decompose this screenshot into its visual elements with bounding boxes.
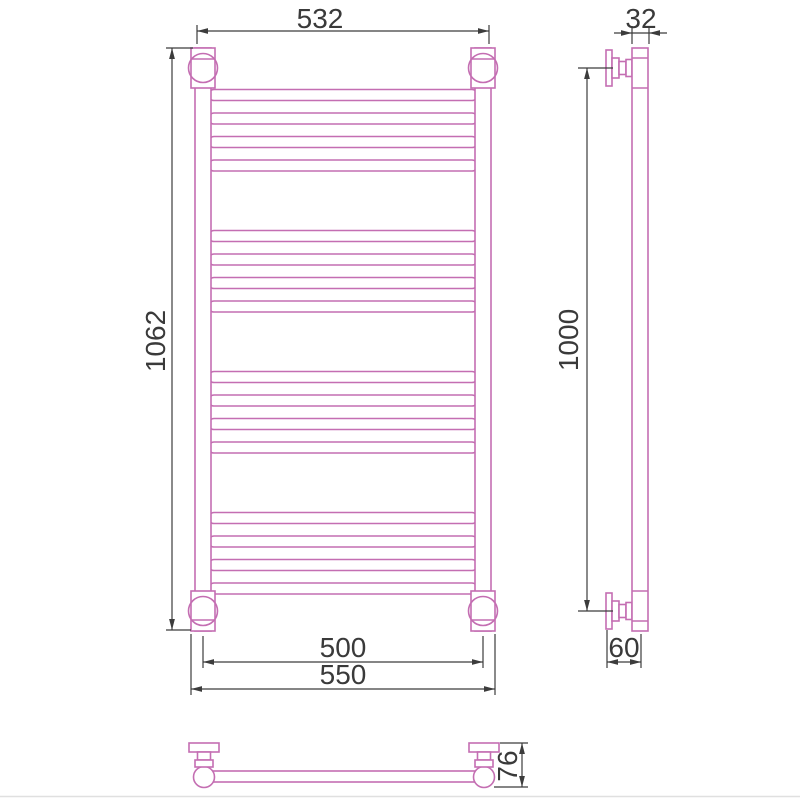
- dimension-arrow: [519, 743, 525, 754]
- towel-rung: [209, 301, 478, 312]
- dimension-arrow: [203, 659, 214, 665]
- dim-label-532: 532: [297, 3, 344, 34]
- bracket-neck: [619, 62, 626, 75]
- plan-bracket-left: [189, 743, 219, 767]
- side-view: [606, 48, 648, 631]
- dim-label-32: 32: [625, 3, 656, 34]
- bracket-neck: [619, 605, 626, 618]
- towel-rung: [209, 278, 478, 289]
- dimension-overall-height: 1062: [140, 48, 193, 630]
- dimension-arrow: [169, 619, 175, 630]
- drawing-canvas: 532 1062 500 550 32 1000 60 76: [0, 0, 800, 800]
- bracket-collar: [626, 603, 632, 620]
- front-view: [189, 48, 498, 631]
- dimension-arrow: [584, 600, 590, 611]
- towel-rung: [209, 419, 478, 430]
- bracket-wall-plate: [189, 743, 219, 752]
- dimension-arrow: [478, 28, 489, 34]
- dimension-top-mount-width: 532: [197, 3, 489, 44]
- plan-left-tube-section: [194, 767, 215, 788]
- towel-rung: [209, 90, 478, 101]
- dimension-arrow: [484, 686, 495, 692]
- plan-view: [189, 743, 499, 788]
- bracket-neck: [198, 752, 211, 760]
- dim-label-76: 76: [492, 750, 523, 781]
- side-tube: [632, 48, 648, 631]
- dimension-arrow: [472, 659, 483, 665]
- towel-rail-technical-drawing: 532 1062 500 550 32 1000 60 76: [0, 0, 800, 800]
- dimension-bracket-spacing: 1000: [553, 68, 613, 611]
- front-left-tube: [195, 48, 211, 631]
- dimension-arrow: [191, 686, 202, 692]
- bracket-collar: [626, 60, 632, 77]
- towel-rung: [209, 442, 478, 453]
- dim-label-1062: 1062: [140, 310, 171, 372]
- bracket-neck: [478, 752, 491, 760]
- dimension-arrow: [584, 68, 590, 79]
- dim-label-550: 550: [320, 659, 367, 690]
- towel-rung: [209, 372, 478, 383]
- rung-container: [209, 90, 478, 595]
- towel-rung: [209, 137, 478, 148]
- dimension-arrow: [169, 48, 175, 59]
- towel-rung: [209, 113, 478, 124]
- dim-label-1000: 1000: [553, 309, 584, 371]
- dimension-tube-diameter: 32: [614, 3, 667, 44]
- towel-rung: [209, 231, 478, 242]
- bracket-flange: [195, 760, 213, 767]
- towel-rung: [209, 536, 478, 547]
- towel-rung: [209, 160, 478, 171]
- front-right-tube: [475, 48, 491, 631]
- dimension-arrow: [197, 28, 208, 34]
- bracket-flange: [475, 760, 493, 767]
- towel-rung: [209, 583, 478, 594]
- bracket-ring: [612, 601, 619, 621]
- towel-rung: [209, 395, 478, 406]
- dim-label-60: 60: [608, 632, 639, 663]
- towel-rung: [209, 254, 478, 265]
- bracket-ring: [612, 58, 619, 78]
- towel-rung: [209, 560, 478, 571]
- towel-rung: [209, 513, 478, 524]
- plan-rung-bar: [204, 771, 484, 782]
